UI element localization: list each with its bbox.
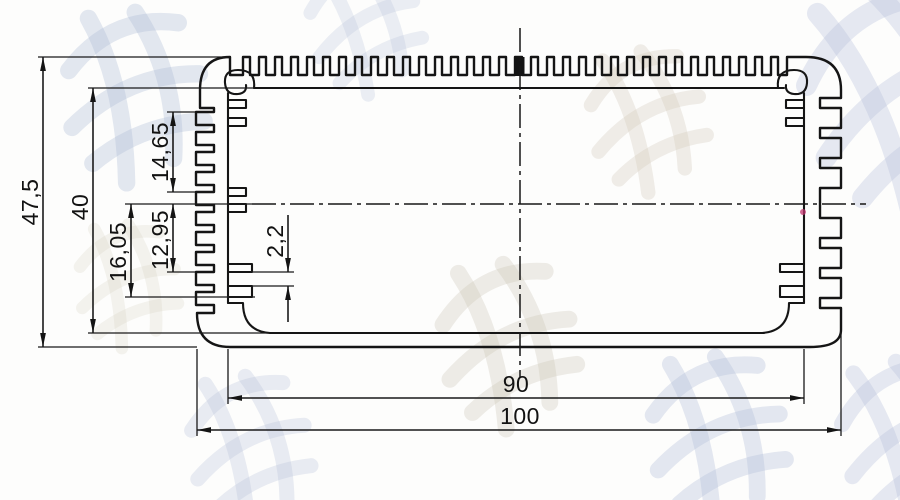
dim-overall-width-label: 100: [500, 403, 540, 429]
top-left-boss-tabs: [228, 100, 246, 126]
left-card-slot: [228, 264, 252, 297]
watermark-stroke: [626, 335, 807, 500]
dim-overall-height-label: 47,5: [17, 179, 43, 226]
bottom-left-foot: [228, 303, 270, 333]
dim-lower-inner-span-label: 12,95: [147, 210, 173, 270]
dim-lower-outer-span-label: 16,05: [105, 222, 131, 282]
watermark-stroke: [166, 356, 330, 500]
dim-inner-width-label: 90: [503, 371, 530, 397]
right-card-slot: [780, 264, 804, 297]
dim-card-slot-gap-label: 2,2: [262, 224, 288, 257]
top-right-boss-tabs: [786, 100, 804, 126]
left-mid-screw-channel: [228, 188, 246, 212]
bottom-right-foot: [762, 303, 804, 333]
drawing-canvas: 47,5 40 14,65 16,05 12,95 2,2 90 100: [0, 0, 900, 500]
extrusion-profile-drawing: 47,5 40 14,65 16,05 12,95 2,2 90 100: [0, 0, 900, 500]
watermark-stroke: [762, 0, 900, 237]
red-speck: [800, 209, 806, 215]
watermark-stroke: [285, 0, 442, 107]
dim-upper-fin-span-label: 14,65: [147, 122, 173, 182]
dim-inner-height-label: 40: [67, 194, 93, 221]
watermark-stroke: [812, 337, 900, 500]
